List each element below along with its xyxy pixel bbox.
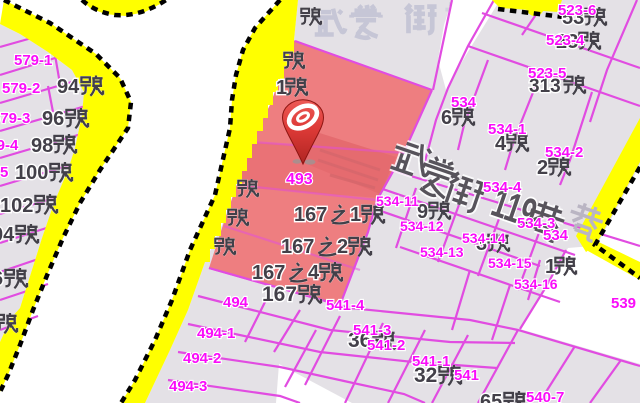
- svg-text:167: 167: [281, 236, 314, 258]
- svg-text:579-4: 579-4: [0, 137, 19, 154]
- svg-text:534: 534: [451, 94, 477, 111]
- svg-text:94: 94: [57, 76, 80, 98]
- svg-text:494-2: 494-2: [183, 350, 221, 367]
- svg-text:4: 4: [308, 262, 320, 284]
- svg-text:494: 494: [223, 294, 249, 311]
- svg-text:98: 98: [31, 135, 53, 157]
- svg-text:6: 6: [0, 268, 3, 290]
- svg-text:541-4: 541-4: [326, 297, 365, 314]
- svg-text:541: 541: [454, 367, 479, 384]
- svg-text:167: 167: [252, 262, 285, 284]
- svg-text:579-1: 579-1: [14, 52, 52, 69]
- svg-text:534-11: 534-11: [376, 193, 419, 209]
- svg-text:96: 96: [42, 108, 64, 130]
- svg-text:523-6: 523-6: [558, 2, 596, 19]
- svg-text:04: 04: [0, 224, 15, 246]
- svg-text:523-4: 523-4: [546, 32, 585, 49]
- svg-text:523-5: 523-5: [528, 65, 566, 82]
- svg-text:494-3: 494-3: [169, 378, 207, 395]
- svg-text:534-14: 534-14: [462, 230, 506, 246]
- svg-text:539: 539: [611, 295, 636, 312]
- svg-text:1: 1: [350, 204, 361, 226]
- svg-text:534-2: 534-2: [545, 144, 583, 161]
- svg-text:540-7: 540-7: [526, 389, 564, 403]
- svg-text:65: 65: [480, 391, 502, 403]
- svg-text:100: 100: [15, 162, 48, 184]
- svg-text:541-2: 541-2: [367, 337, 405, 354]
- svg-text:5: 5: [0, 164, 8, 181]
- svg-text:102: 102: [0, 195, 33, 217]
- svg-text:534-4: 534-4: [483, 179, 522, 196]
- svg-text:167: 167: [294, 204, 327, 226]
- svg-text:541-1: 541-1: [412, 353, 450, 370]
- svg-text:2: 2: [337, 236, 348, 258]
- svg-text:494-1: 494-1: [197, 325, 235, 342]
- svg-text:534-15: 534-15: [488, 255, 532, 271]
- svg-text:579-3: 579-3: [0, 110, 30, 127]
- svg-text:167: 167: [262, 283, 297, 306]
- svg-text:493: 493: [286, 171, 313, 188]
- svg-text:579-2: 579-2: [2, 80, 40, 97]
- svg-text:534-12: 534-12: [400, 218, 444, 234]
- svg-text:534-1: 534-1: [488, 121, 526, 138]
- svg-text:534-16: 534-16: [514, 276, 558, 292]
- svg-text:534-13: 534-13: [420, 244, 464, 260]
- svg-text:534: 534: [543, 227, 569, 244]
